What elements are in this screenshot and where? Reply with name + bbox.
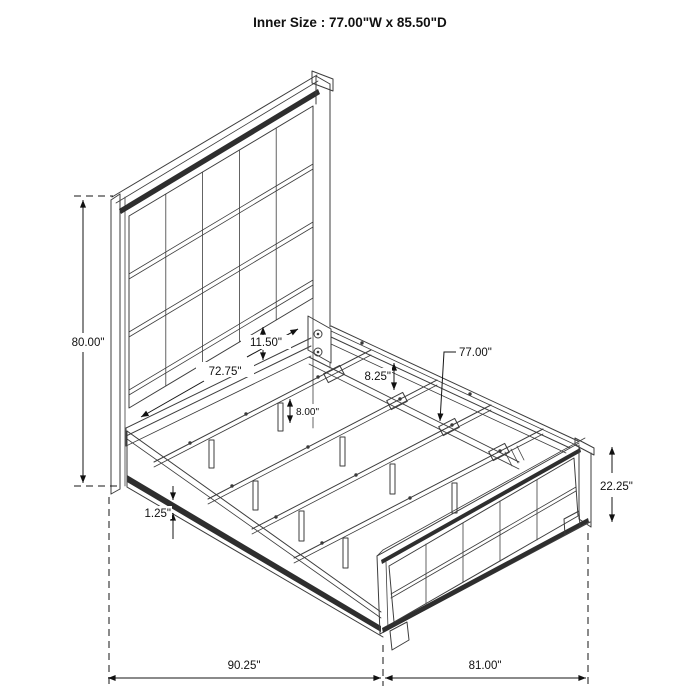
slat-connectors [324,365,510,460]
cap-shadow-band [119,89,320,214]
dim-label-inner-width: 72.75" [209,366,242,378]
support-legs [209,403,457,568]
dim-overall-width: 81.00" [385,660,586,678]
dim-label-overall-height: 80.00" [72,337,105,349]
dim-overall-height: 80.00" [72,200,105,483]
dim-label-rail-lip: 1.25" [145,508,171,520]
dim-overall-depth: 90.25" [108,660,381,678]
diagram-canvas: 80.00" 72.75" 11.50" 8.25" 77.00" [0,0,700,700]
dim-label-overall-depth: 90.25" [228,660,261,672]
footboard [377,438,594,650]
dim-label-rail-height: 8.25" [365,371,391,383]
rail-bracket [308,316,331,363]
slat-2 [208,380,437,504]
page-title: Inner Size : 77.00"W x 85.50"D [253,15,447,30]
bed-dimension-diagram: 80.00" 72.75" 11.50" 8.25" 77.00" [0,0,700,700]
dim-footboard-height: 22.25" [600,447,633,522]
headboard [111,71,333,494]
dim-label-slat-span: 77.00" [459,347,492,359]
footboard-cap-band [381,448,581,564]
dim-label-overall-width: 81.00" [469,660,502,672]
dim-label-leg-height: 8.00" [296,407,319,418]
bed-frame-deck [126,316,578,637]
footboard-bottom-band [382,518,589,633]
slat-3 [252,405,491,534]
slat-1 [154,350,371,467]
dim-leg-height: 8.00" [290,399,322,423]
dim-label-panel-gap: 11.50" [250,337,282,349]
dim-panel-gap: 11.50" [241,327,291,360]
dim-label-footboard-height: 22.25" [600,481,633,493]
